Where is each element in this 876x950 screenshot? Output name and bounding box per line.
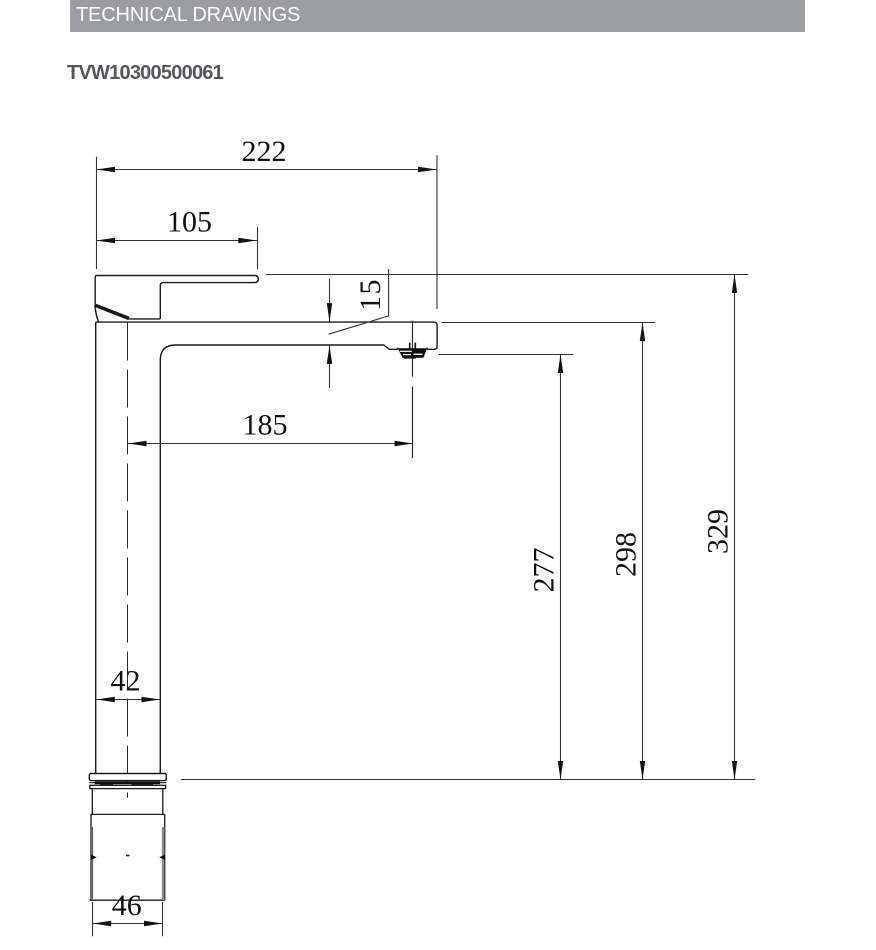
svg-text:185: 185	[243, 409, 288, 442]
svg-text:298: 298	[610, 532, 643, 577]
svg-text:105: 105	[167, 206, 212, 239]
svg-text:222: 222	[242, 135, 287, 168]
svg-text:329: 329	[702, 509, 735, 554]
svg-text:277: 277	[528, 548, 561, 593]
svg-text:46: 46	[112, 889, 142, 922]
svg-text:42: 42	[111, 665, 141, 698]
svg-text:15: 15	[354, 278, 387, 311]
